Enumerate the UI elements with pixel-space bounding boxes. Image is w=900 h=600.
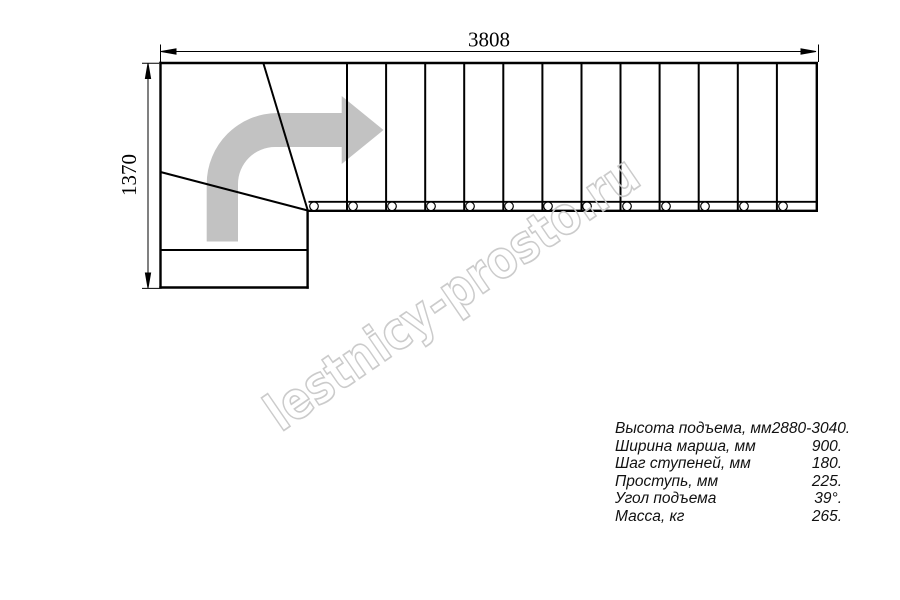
baluster-circle	[466, 202, 475, 211]
baluster-circle	[388, 202, 397, 211]
spec-label: Проступь, мм	[615, 473, 718, 491]
baluster-circle	[779, 202, 788, 211]
dim-arrowhead-icon	[161, 49, 176, 54]
dim-arrowhead-icon	[145, 273, 150, 288]
baluster-circle	[310, 202, 319, 211]
spec-value: 2880-3040.	[772, 420, 850, 438]
spec-label: Высота подъема, мм	[615, 420, 772, 438]
spec-label: Шаг ступеней, мм	[615, 455, 751, 473]
spec-label: Масса, кг	[615, 508, 684, 526]
spec-row-mass: Масса, кг 265.	[615, 508, 842, 526]
spec-value: 900.	[812, 438, 842, 456]
spec-value: 265.	[812, 508, 842, 526]
spec-value: 180.	[812, 455, 842, 473]
spec-value: 39°.	[814, 490, 842, 508]
spec-label: Ширина марша, мм	[615, 438, 756, 456]
spec-row-angle: Угол подъема 39°.	[615, 490, 842, 508]
baluster-circle	[349, 202, 358, 211]
staircase-drawing-canvas: 3808 1370 lestnicy-prosto.ru Высота подъ…	[0, 0, 900, 600]
spec-row-step-rise: Шаг ступеней, мм 180.	[615, 455, 842, 473]
baluster-circle	[662, 202, 671, 211]
dimension-width: 3808	[161, 28, 819, 63]
baluster-circle	[427, 202, 436, 211]
dimension-depth-label: 1370	[117, 154, 141, 196]
spec-list: Высота подъема, мм 2880-3040. Ширина мар…	[615, 420, 842, 525]
dim-arrowhead-icon	[145, 64, 150, 79]
spec-row-tread-depth: Проступь, мм 225.	[615, 473, 842, 491]
spec-row-height: Высота подъема, мм 2880-3040.	[615, 420, 842, 438]
baluster-circle	[740, 202, 749, 211]
watermark: lestnicy-prosto.ru	[254, 145, 651, 444]
dimension-depth: 1370	[117, 63, 160, 288]
spec-row-flight-width: Ширина марша, мм 900.	[615, 438, 842, 456]
spec-label: Угол подъема	[615, 490, 716, 508]
baluster-circle	[701, 202, 710, 211]
dimension-width-label: 3808	[468, 28, 510, 52]
spec-value: 225.	[812, 473, 842, 491]
dim-arrowhead-icon	[801, 49, 816, 54]
baluster-circle	[505, 202, 514, 211]
